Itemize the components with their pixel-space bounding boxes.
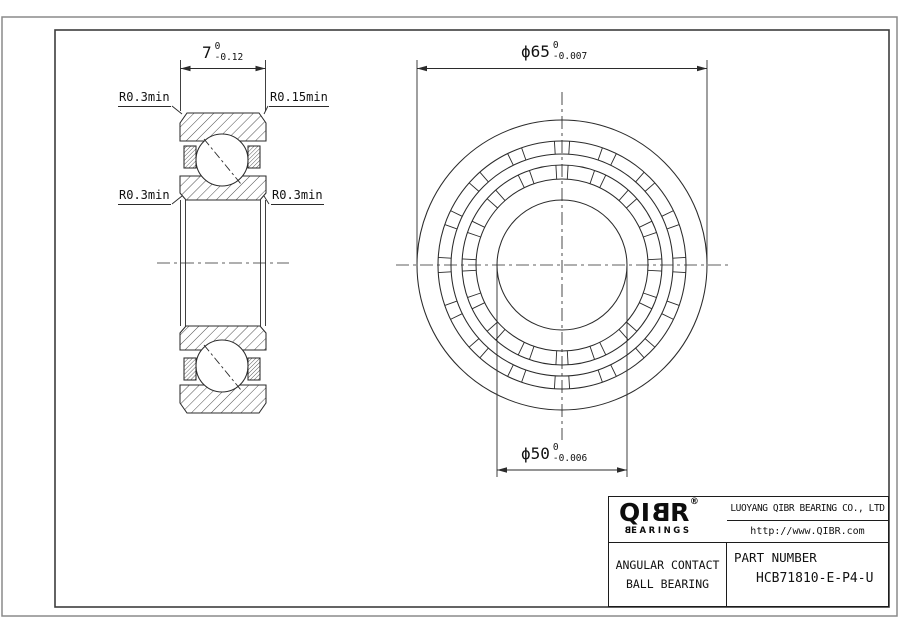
dim-width-text: 7 0 -0.12 (202, 42, 243, 64)
part-number-label: PART NUMBER (734, 550, 888, 565)
dim-bore-nominal: ϕ50 (521, 446, 550, 462)
cage-lower-right (248, 358, 260, 380)
title-block-header-row: QIBR® BEARINGS LUOYANG QIBR BEARING CO.,… (609, 497, 888, 542)
part-number-cell: PART NUMBER HCB71810-E-P4-U (727, 543, 888, 606)
cage-lower-left (184, 358, 196, 380)
section-view (157, 113, 289, 413)
cage-upper-left (184, 146, 196, 168)
ball-upper (196, 134, 248, 186)
title-block-detail-row: ANGULAR CONTACT BALL BEARING PART NUMBER… (609, 542, 888, 606)
front-view (396, 92, 728, 440)
logo-subtitle: BEARINGS (619, 526, 727, 536)
dimension-width (181, 60, 266, 111)
radius-label-top-right: R0.15min (269, 91, 329, 107)
product-type-cell: ANGULAR CONTACT BALL BEARING (609, 543, 727, 606)
ball-lower (196, 340, 248, 392)
registered-trademark-icon: ® (690, 497, 700, 507)
dim-width-tolerance: 0 -0.12 (215, 42, 244, 64)
dim-width-nominal: 7 (202, 45, 212, 61)
product-type-line2: BALL BEARING (626, 577, 709, 591)
radius-label-bottom-left: R0.3min (118, 189, 171, 205)
radius-label-bottom-right: R0.3min (271, 189, 324, 205)
dim-outer-diameter-text: ϕ65 0 -0.007 (521, 41, 587, 63)
dim-bore-tolerance: 0 -0.006 (553, 443, 587, 465)
product-type-line1: ANGULAR CONTACT (616, 558, 720, 572)
dim-od-tolerance: 0 -0.007 (553, 41, 587, 63)
company-name: LUOYANG QIBR BEARING CO., LTD (727, 497, 888, 521)
company-website: http://www.QIBR.com (727, 521, 888, 542)
radius-label-top-left: R0.3min (118, 91, 171, 107)
cage-upper-right (248, 146, 260, 168)
company-info: LUOYANG QIBR BEARING CO., LTD http://www… (727, 497, 888, 542)
dim-od-nominal: ϕ65 (521, 44, 550, 60)
company-logo: QIBR® BEARINGS (609, 497, 727, 542)
logo-wordmark: QIBR® (619, 500, 727, 525)
drawing-sheet: 7 0 -0.12 ϕ65 0 -0.007 ϕ50 0 -0.006 R0.3… (0, 0, 900, 636)
part-number-value: HCB71810-E-P4-U (756, 571, 888, 586)
title-block: QIBR® BEARINGS LUOYANG QIBR BEARING CO.,… (608, 496, 889, 607)
dim-bore-diameter-text: ϕ50 0 -0.006 (521, 443, 587, 465)
